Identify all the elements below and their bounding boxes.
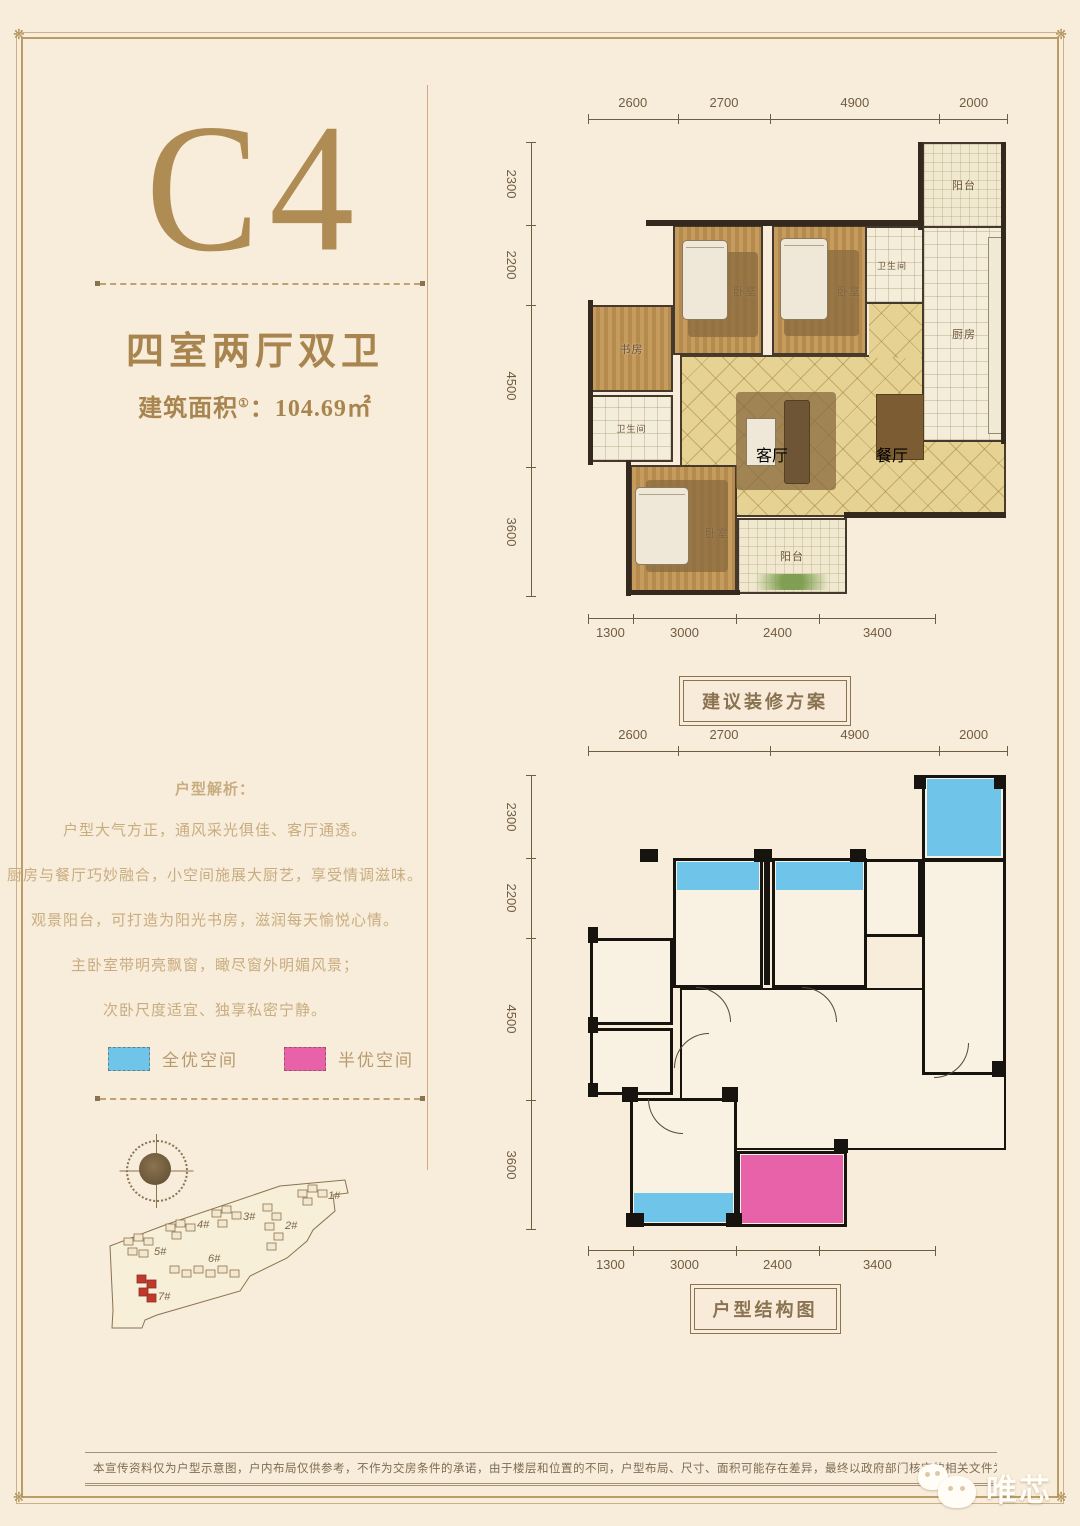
corner-ornament-icon: ❋ xyxy=(13,1492,25,1506)
plan1-caption-wrap: 建议装修方案 xyxy=(555,680,975,722)
corner-ornament-icon: ❋ xyxy=(1055,29,1067,43)
room-bath-left: 卫生间 xyxy=(590,395,673,462)
wechat-icon xyxy=(918,1462,976,1512)
building-label: 1# xyxy=(328,1190,341,1202)
building-label: 3# xyxy=(243,1211,256,1223)
highlight-blue-balcony xyxy=(927,779,1001,856)
area-footnote-mark: ① xyxy=(238,396,250,410)
legend-label: 半优空间 xyxy=(338,1046,414,1071)
analysis-line: 次卧尺度适宜、独享私密宁静。 xyxy=(50,999,380,1020)
floorplan-structural xyxy=(588,775,1008,1230)
plan1-dims-left: 2300 2200 4500 3600 xyxy=(506,142,532,597)
wall xyxy=(588,300,593,465)
plan2-caption-wrap: 户型结构图 xyxy=(555,1288,975,1330)
corner-ornament-icon: ❋ xyxy=(13,29,25,43)
unit-type-title: 四室两厅双卫 xyxy=(85,320,425,375)
wall xyxy=(1001,142,1006,444)
wall xyxy=(630,590,740,595)
plan1-dims-top: 2600 2700 4900 2000 xyxy=(588,112,1008,120)
area-label: 建筑面积 xyxy=(138,396,238,422)
analysis-title: 户型解析： xyxy=(50,778,380,799)
legend-item: 全优空间 xyxy=(108,1046,238,1071)
planter-greenery xyxy=(740,574,844,590)
flyer-page: ❋ ❋ ❋ ❋ C4 四室两厅双卫 建筑面积①：104.69㎡ 户型解析： 户型… xyxy=(0,0,1080,1526)
wall xyxy=(646,220,924,226)
highlight-blue-window-b xyxy=(776,862,863,890)
plan2-caption: 户型结构图 xyxy=(694,1288,837,1330)
site-plan: 1# 2# 3# 4# 5# 6# 7# xyxy=(80,1128,410,1358)
legend-swatch-blue xyxy=(108,1047,150,1071)
analysis-line: 户型大气方正，通风采光俱佳、客厅通透。 xyxy=(50,819,380,840)
highlight-blue-window-a xyxy=(677,862,759,890)
divider-dashed xyxy=(95,1096,425,1101)
logo-text: 唯芯 xyxy=(986,1465,1052,1510)
bed xyxy=(682,240,728,320)
corner-ornament-icon: ❋ xyxy=(1055,1492,1067,1506)
analysis-line: 厨房与餐厅巧妙融合，小空间施展大厨艺，享受情调滋味。 xyxy=(50,864,380,885)
wall xyxy=(626,460,631,596)
space-quality-legend: 全优空间 半优空间 xyxy=(108,1046,414,1071)
floorplan-furnished: 阳台 厨房 卫生间 卧室 卧室 书房 卫生间 卧室 阳台 客厅 餐厅 xyxy=(588,142,1008,597)
building-label: 7# xyxy=(158,1291,171,1303)
built-area: 建筑面积①：104.69㎡ xyxy=(85,388,425,423)
room-bath-top: 卫生间 xyxy=(860,226,924,304)
room-dining-label: 餐厅 xyxy=(876,442,908,466)
bed xyxy=(635,487,689,565)
building-label: 2# xyxy=(284,1220,298,1232)
plan1-dims-bottom: 1300 3000 2400 3400 xyxy=(588,618,936,626)
analysis-line: 主卧室带明亮飘窗，瞰尽窗外明媚风景； xyxy=(50,954,380,975)
p2-bath-top xyxy=(860,859,924,937)
room-balcony-top: 阳台 xyxy=(922,142,1006,228)
plan2-dims-top: 2600 2700 4900 2000 xyxy=(588,744,1008,752)
bed xyxy=(780,238,828,320)
plan1-caption: 建议装修方案 xyxy=(683,680,847,722)
room-living-label: 客厅 xyxy=(756,442,788,466)
building-label: 5# xyxy=(154,1246,167,1258)
legend-item: 半优空间 xyxy=(284,1046,414,1071)
analysis-line: 观景阳台，可打造为阳光书房，滋润每天愉悦心情。 xyxy=(50,909,380,930)
divider-dashed xyxy=(95,281,425,286)
legend-label: 全优空间 xyxy=(162,1046,238,1071)
plan2-dims-bottom: 1300 3000 2400 3400 xyxy=(588,1250,936,1258)
p2-bath-left xyxy=(590,1028,673,1095)
highlight-blue-window-c xyxy=(634,1193,733,1222)
area-value: ：104.69㎡ xyxy=(250,396,372,422)
building-label: 4# xyxy=(197,1219,210,1231)
highlight-pink-balcony xyxy=(741,1155,843,1223)
wall xyxy=(844,512,1006,518)
plan2-dims-left: 2300 2200 4500 3600 xyxy=(506,775,532,1230)
wall xyxy=(918,142,923,230)
p2-study xyxy=(590,938,673,1025)
disclaimer-text: 本宣传资料仅为户型示意图，户内布局仅供参考，不作为交房条件的承诺，由于楼层和位置… xyxy=(85,1452,997,1486)
room-study: 书房 xyxy=(590,305,673,392)
unit-analysis: 户型解析： 户型大气方正，通风采光俱佳、客厅通透。 厨房与餐厅巧妙融合，小空间施… xyxy=(50,778,380,1044)
building-label: 6# xyxy=(208,1253,221,1265)
unit-code-title: C4 xyxy=(85,80,425,296)
column-divider xyxy=(427,85,428,1170)
legend-swatch-pink xyxy=(284,1047,326,1071)
watermark-logo: 唯芯 xyxy=(918,1462,1052,1512)
